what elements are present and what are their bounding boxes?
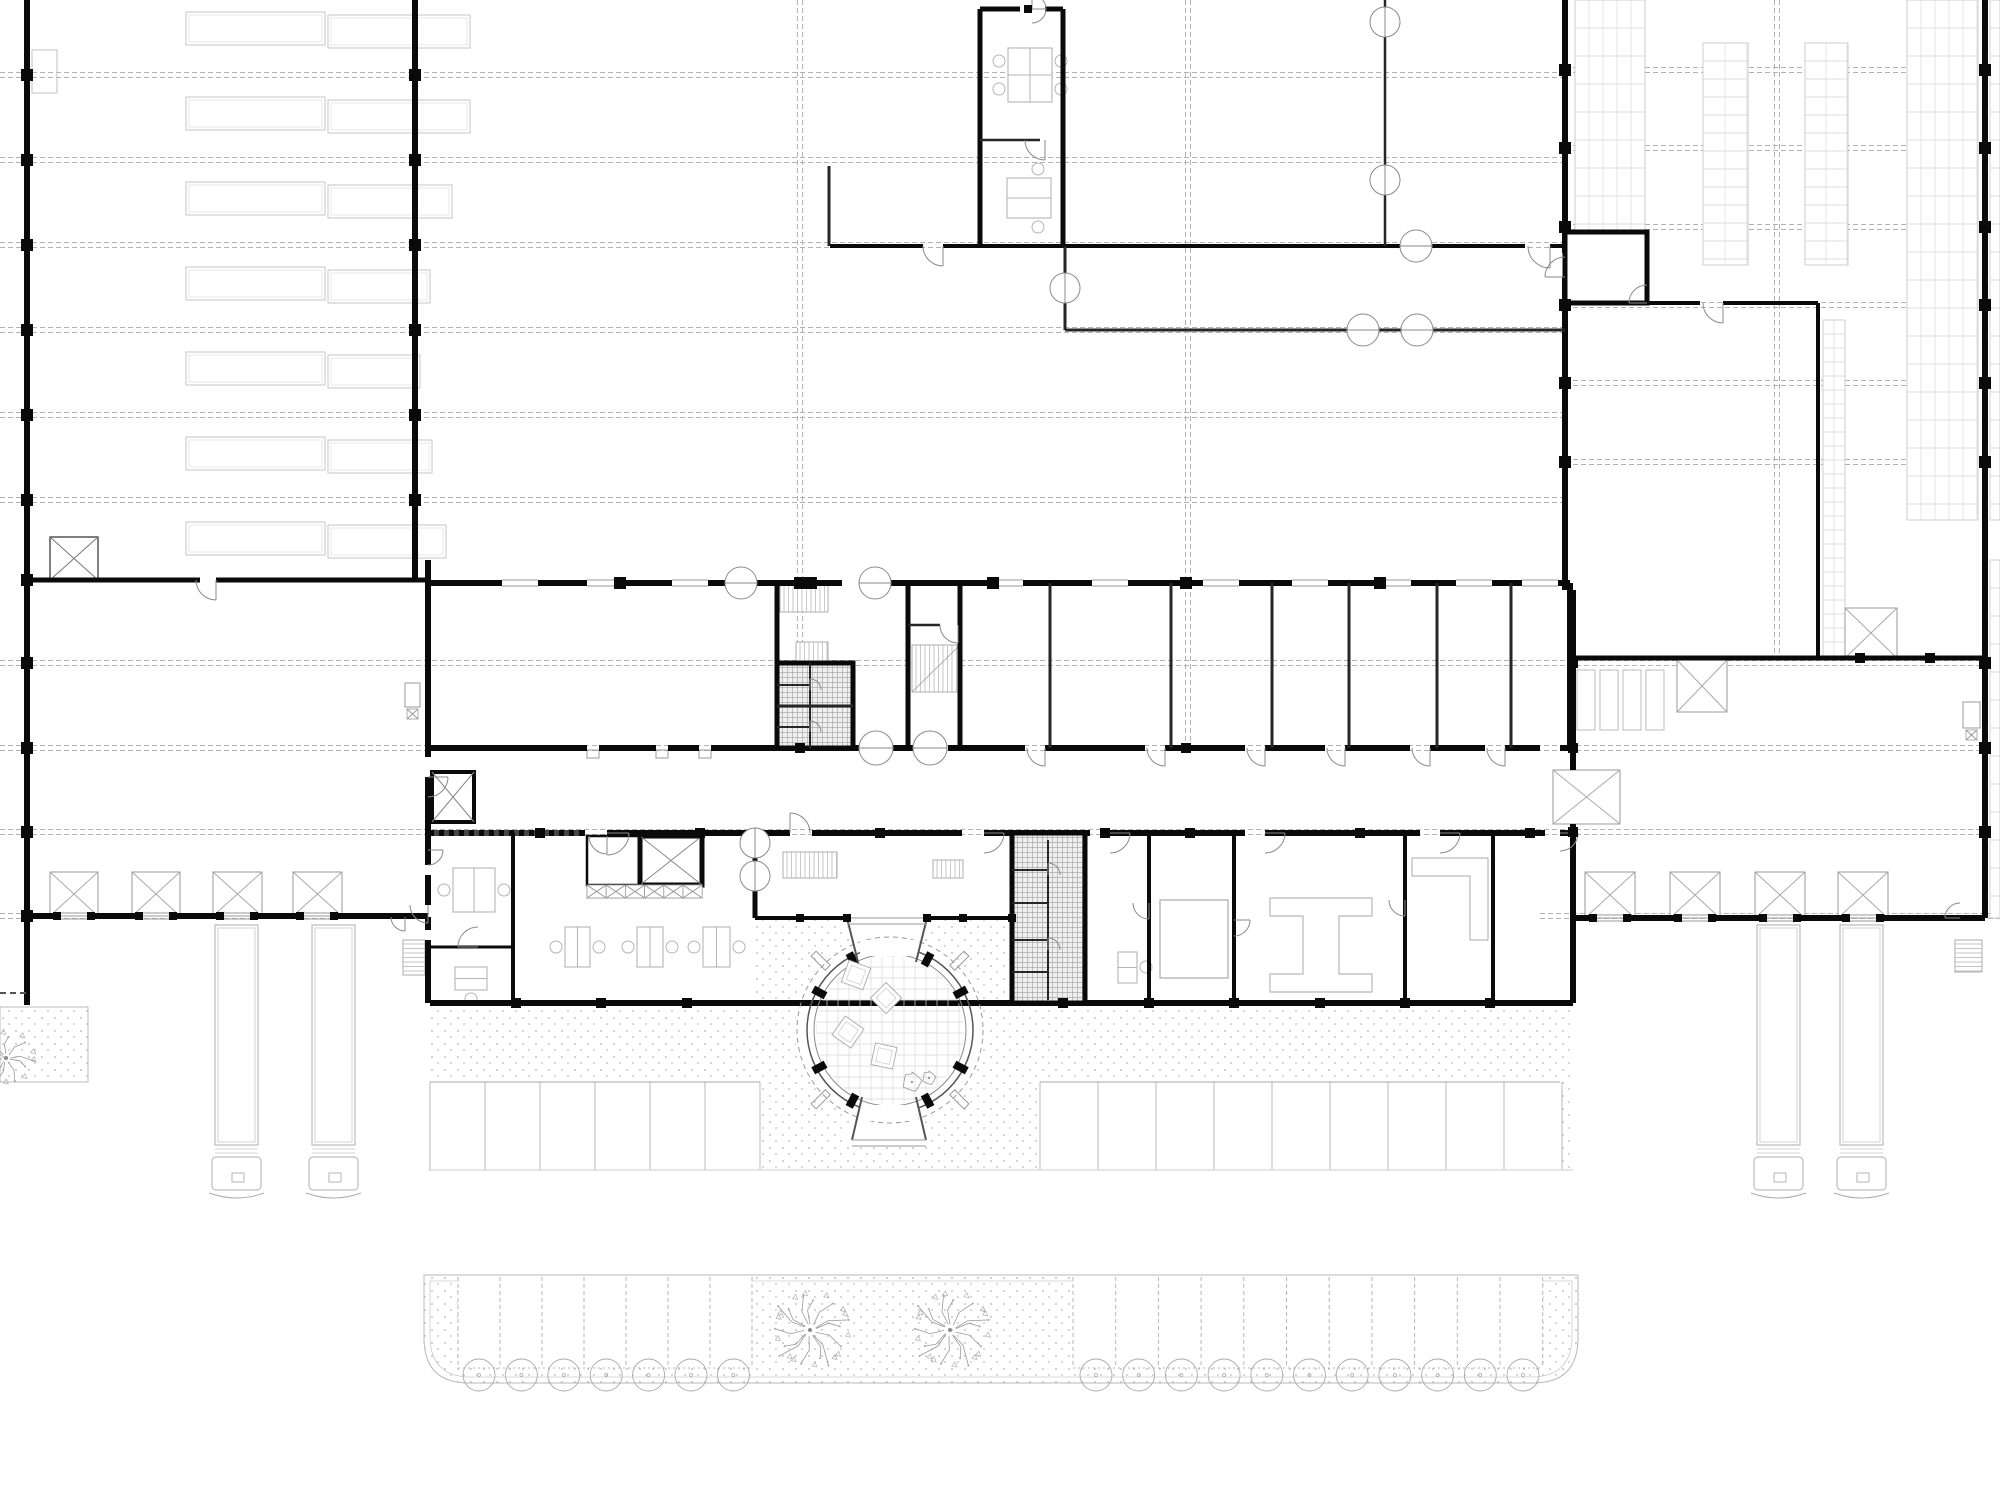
tree <box>924 1345 926 1347</box>
rack-grid <box>1907 0 1978 520</box>
floor-plan-drawing <box>0 0 2000 1500</box>
truck <box>215 925 258 1145</box>
tree <box>802 1295 804 1297</box>
tree <box>778 1355 780 1357</box>
truck <box>1837 1157 1886 1190</box>
tree <box>839 1325 841 1327</box>
tree <box>832 1302 834 1304</box>
truck <box>1754 1157 1803 1190</box>
tree <box>952 1299 954 1301</box>
tree <box>812 1299 814 1301</box>
tree <box>827 1365 829 1367</box>
tree <box>808 1328 812 1332</box>
tree <box>840 1345 842 1347</box>
tree <box>988 1319 990 1321</box>
tree <box>917 1305 919 1307</box>
tree <box>7 1036 9 1038</box>
tree <box>959 1357 961 1359</box>
tree <box>800 1363 802 1365</box>
tree <box>14 1080 16 1082</box>
tree <box>928 1308 930 1310</box>
tree <box>967 1365 969 1367</box>
tree <box>788 1308 790 1310</box>
rack-grid <box>1805 43 1848 265</box>
rack-grid <box>1990 560 2000 918</box>
tree <box>948 1328 952 1332</box>
rack-grid <box>1703 43 1748 265</box>
tree <box>848 1319 850 1321</box>
parking-stalls-left <box>458 1277 752 1366</box>
garden-plot <box>0 1007 88 1082</box>
floor-plan-canvas <box>0 0 2000 1500</box>
truck <box>1757 925 1800 1145</box>
rack-grid <box>1990 0 2000 520</box>
tree <box>24 1066 26 1068</box>
tree <box>918 1355 920 1357</box>
tree <box>972 1302 974 1304</box>
tree <box>4 1056 8 1060</box>
tree <box>940 1363 942 1365</box>
tree <box>914 1328 916 1330</box>
truck <box>1840 925 1883 1145</box>
rack-grid <box>1575 0 1645 230</box>
terrace-stalls-right <box>1040 1082 1560 1170</box>
tree <box>979 1325 981 1327</box>
tree <box>942 1295 944 1297</box>
tree <box>774 1328 776 1330</box>
parking-stalls-right <box>1073 1277 1543 1366</box>
tree <box>819 1357 821 1359</box>
control-room <box>1565 232 1647 303</box>
tree <box>784 1345 786 1347</box>
truck <box>212 1157 261 1190</box>
truck <box>312 925 355 1145</box>
tree <box>24 1042 26 1044</box>
tree <box>777 1305 779 1307</box>
truck <box>309 1157 358 1190</box>
tree <box>980 1345 982 1347</box>
